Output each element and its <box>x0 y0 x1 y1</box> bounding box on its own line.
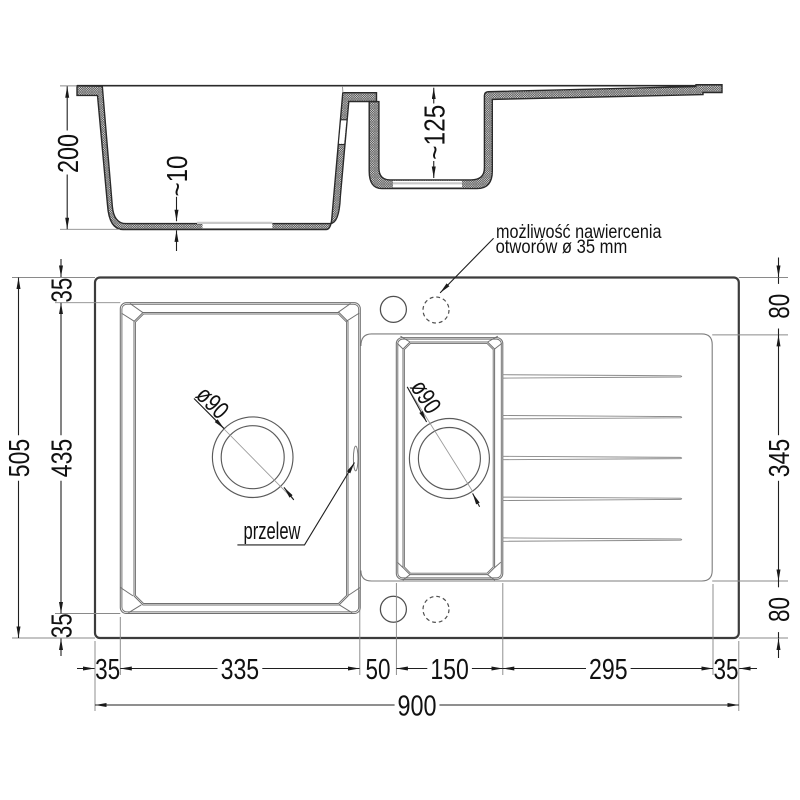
svg-text:35: 35 <box>714 654 739 686</box>
svg-text:~10: ~10 <box>162 156 194 197</box>
svg-text:50: 50 <box>366 654 391 686</box>
svg-text:80: 80 <box>764 294 796 319</box>
svg-text:335: 335 <box>221 654 260 686</box>
svg-text:295: 295 <box>589 654 628 686</box>
svg-text:435: 435 <box>47 439 79 478</box>
svg-text:35: 35 <box>47 613 79 638</box>
svg-text:900: 900 <box>398 691 437 723</box>
svg-text:35: 35 <box>95 654 120 686</box>
svg-text:80: 80 <box>764 597 796 622</box>
svg-text:przelew: przelew <box>244 518 301 545</box>
svg-text:150: 150 <box>430 654 469 686</box>
svg-text:~125: ~125 <box>419 105 451 160</box>
svg-text:otworów ø 35 mm: otworów ø 35 mm <box>496 237 628 258</box>
svg-text:200: 200 <box>53 134 85 173</box>
svg-text:505: 505 <box>4 439 36 478</box>
svg-text:35: 35 <box>47 278 79 303</box>
svg-text:345: 345 <box>764 439 796 478</box>
